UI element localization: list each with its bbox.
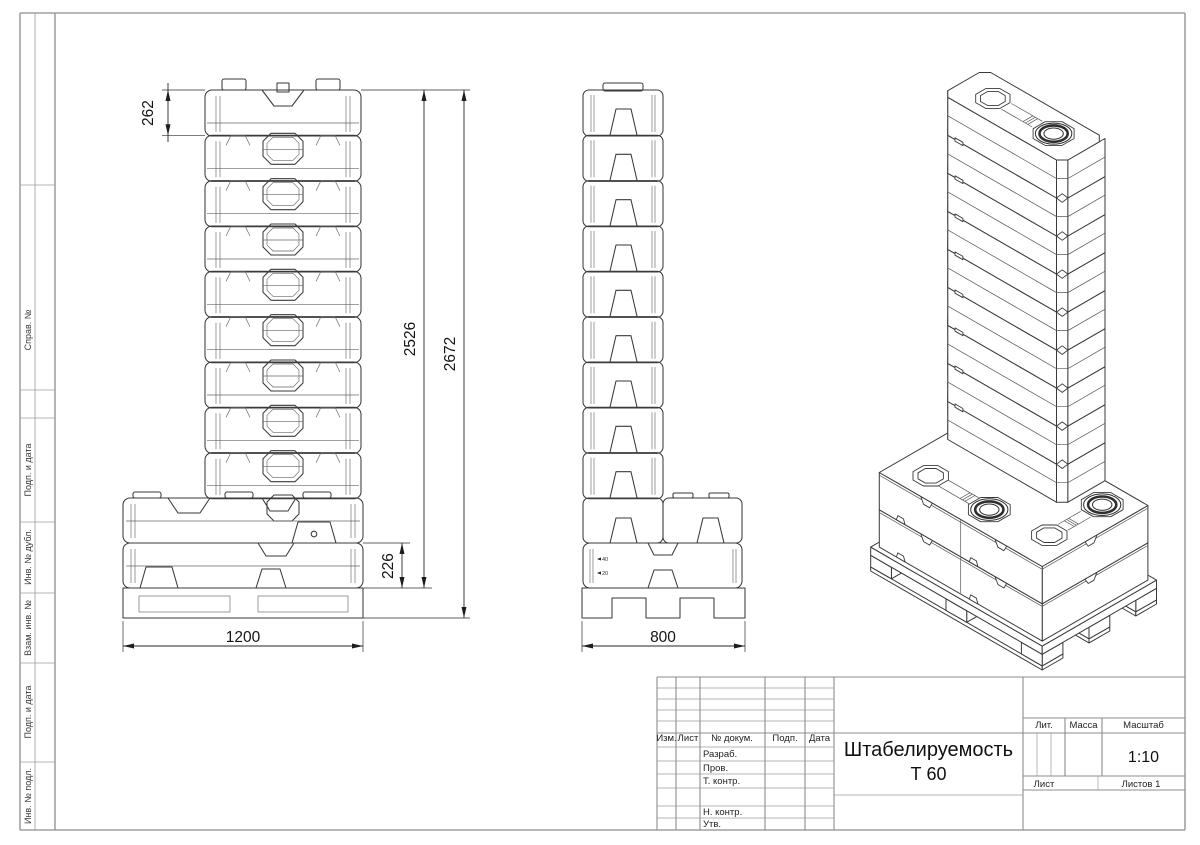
margin-label-vzam: Взам. инв. №	[23, 600, 33, 656]
drawing-subtitle: Т 60	[910, 764, 946, 784]
tank-unit-side	[583, 135, 663, 181]
isometric-view	[871, 73, 1157, 671]
drawing-line	[267, 228, 299, 251]
stamp-col-dokum: № докум.	[711, 733, 753, 744]
tower-band	[1057, 160, 1068, 198]
svg-text:2526: 2526	[402, 322, 419, 356]
drawing-line	[316, 362, 340, 372]
unit-recess	[610, 154, 637, 180]
level-mark-20: 20	[602, 571, 608, 577]
tank-unit-side	[583, 317, 663, 363]
unit-recess	[610, 245, 637, 271]
tank-unit-front	[205, 407, 361, 453]
stamp-listov: Листов 1	[1122, 779, 1161, 790]
junction-octagon	[263, 405, 303, 436]
unit-recess	[610, 109, 637, 135]
stamp-list: Лист	[1034, 779, 1055, 790]
dim-flat-tank-height: 226	[363, 543, 410, 588]
front-pallet	[123, 588, 363, 618]
svg-text:1200: 1200	[226, 629, 261, 646]
side-bottom-tank: 40 20	[583, 543, 742, 588]
drawing-line	[267, 273, 299, 296]
tank-unit-front	[205, 226, 361, 272]
tank-unit-front	[205, 181, 361, 227]
tower-band	[1057, 312, 1068, 350]
front-flat-layer-2	[123, 543, 363, 588]
neck-ring	[1044, 128, 1063, 139]
side-tower-units	[583, 90, 663, 499]
unit-recess	[610, 336, 637, 362]
junction-octagon	[263, 179, 303, 210]
side-pallet	[582, 588, 745, 618]
drawing-line	[316, 135, 340, 145]
tank-unit-side	[583, 181, 663, 227]
title-block: Изм. Лист № докум. Подп. Дата Разраб. Пр…	[656, 677, 1185, 830]
isometric-stack	[871, 73, 1157, 671]
tank-unit-side	[583, 226, 663, 272]
svg-text:262: 262	[140, 100, 157, 126]
stamp-col-podp: Подп.	[772, 733, 797, 744]
tank-unit-side	[583, 362, 663, 408]
stamp-col-data: Дата	[809, 733, 831, 744]
margin-label-podp1: Подп. и дата	[23, 443, 33, 496]
tower-band	[1057, 198, 1068, 236]
drawing-line	[267, 183, 299, 206]
margin-label-sprav: Справ. №	[23, 309, 33, 350]
drawing-title: Штабелируемость	[844, 739, 1013, 761]
neck-ring	[980, 504, 999, 515]
stamp-row-razrab: Разраб.	[703, 749, 737, 760]
unit-recess	[610, 426, 637, 452]
stamp-col-list: Лист	[678, 733, 699, 744]
dim-pallet-length: 1200	[123, 621, 363, 652]
unit-recess	[610, 200, 637, 226]
unit-recess	[610, 290, 637, 316]
tank-unit-front	[205, 362, 361, 408]
stamp-row-prov: Пров.	[703, 763, 728, 774]
front-top-cap-right	[316, 79, 340, 90]
stamp-col-izm: Изм.	[656, 733, 676, 744]
drawing-line	[226, 135, 250, 145]
tower-band	[1057, 388, 1068, 426]
tower-band	[1057, 236, 1068, 274]
drawing-line	[226, 453, 250, 463]
tank-unit-front	[205, 90, 361, 136]
stamp-row-nkontr: Н. контр.	[703, 807, 742, 818]
tower-band	[1057, 464, 1068, 502]
drawing-line	[267, 319, 299, 342]
drawing-line	[316, 317, 340, 327]
svg-text:2672: 2672	[442, 337, 459, 371]
svg-text:800: 800	[650, 629, 676, 646]
front-top-cap-left	[222, 79, 246, 90]
drawing-sheet: Справ. № Подп. и дата Инв. № дубл. Взам.…	[0, 0, 1200, 845]
tower-band	[1057, 350, 1068, 388]
drawing-line	[267, 137, 299, 160]
tank-unit-side	[583, 271, 663, 317]
drawing-line	[316, 271, 340, 281]
margin-label-inv-dubl: Инв. № дубл.	[23, 529, 33, 585]
drawing-line	[226, 181, 250, 191]
stamp-massa: Масса	[1069, 720, 1098, 731]
tank-unit-side	[583, 407, 663, 453]
stamp-row-tkontr: Т. контр.	[703, 776, 740, 787]
iso-face	[1037, 528, 1062, 543]
drawing-line	[226, 362, 250, 372]
stamp-scale-value: 1:10	[1128, 749, 1159, 766]
drawing-line	[316, 407, 340, 417]
margin-label-podp2: Подп. и дата	[23, 685, 33, 738]
drawing-line	[267, 455, 299, 478]
stamp-masshtab: Масштаб	[1123, 720, 1164, 731]
unit-recess	[610, 472, 637, 498]
dim-pallet-width: 800	[582, 621, 745, 652]
drawing-line	[226, 407, 250, 417]
tank-unit-front	[205, 317, 361, 363]
margin-label-inv-podl: Инв. № подл.	[23, 768, 33, 824]
tank-unit-front	[205, 135, 361, 181]
stamp-lit: Лит.	[1035, 720, 1052, 731]
front-top-center-cap	[277, 83, 289, 92]
drawing-line	[316, 453, 340, 463]
neck-ring	[1093, 499, 1112, 510]
junction-octagon	[263, 133, 303, 164]
unit-recess	[610, 381, 637, 407]
front-tower-units	[205, 90, 361, 521]
level-mark-40: 40	[602, 557, 608, 563]
tower-band	[1057, 426, 1068, 464]
junction-octagon	[263, 224, 303, 255]
junction-octagon	[263, 269, 303, 300]
junction-octagon	[263, 451, 303, 482]
tank-unit-side	[583, 453, 663, 499]
margin-column: Справ. № Подп. и дата Инв. № дубл. Взам.…	[20, 185, 55, 824]
svg-text:226: 226	[380, 553, 397, 579]
junction-octagon	[263, 360, 303, 391]
front-view: 262 2526 2672 226	[123, 79, 470, 652]
drawing-line	[226, 317, 250, 327]
dim-unit-height: 262	[140, 83, 205, 142]
drawing-line	[316, 181, 340, 191]
tank-unit-side	[583, 90, 663, 136]
drawing-line	[316, 226, 340, 236]
tank-unit-front	[205, 271, 361, 317]
side-row2	[583, 493, 742, 543]
front-flat-layer-1	[123, 492, 363, 543]
drawing-line	[226, 271, 250, 281]
tower-band	[1057, 274, 1068, 312]
drawing-line	[226, 226, 250, 236]
drawing-line	[267, 364, 299, 387]
iso-face	[981, 91, 1006, 105]
side-view: 40 20 800	[582, 83, 745, 652]
iso-face	[918, 469, 943, 484]
drawing-line	[267, 409, 299, 432]
stamp-row-utv: Утв.	[703, 819, 721, 830]
junction-octagon	[263, 315, 303, 346]
